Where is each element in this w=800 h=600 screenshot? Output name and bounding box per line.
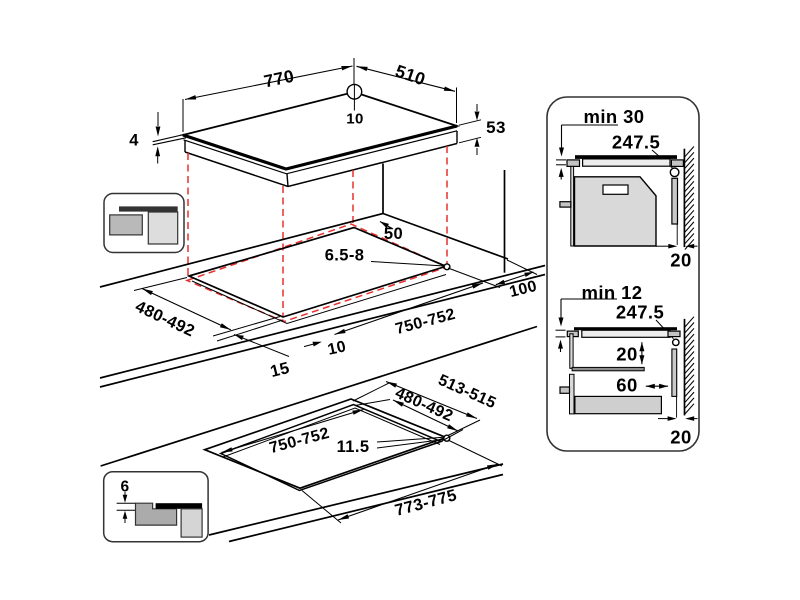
svg-text:100: 100: [508, 278, 539, 301]
svg-text:4: 4: [129, 132, 139, 150]
svg-text:min 12: min 12: [581, 282, 642, 303]
svg-text:53: 53: [486, 118, 506, 137]
svg-text:15: 15: [269, 359, 292, 381]
svg-text:773-775: 773-775: [393, 486, 459, 520]
svg-text:770: 770: [262, 66, 296, 92]
svg-text:min 30: min 30: [583, 106, 644, 127]
svg-text:20: 20: [616, 344, 637, 365]
svg-text:20: 20: [670, 250, 691, 271]
svg-text:247.5: 247.5: [616, 302, 664, 323]
svg-text:510: 510: [393, 61, 428, 90]
svg-text:10: 10: [326, 338, 348, 358]
svg-text:6.5-8: 6.5-8: [325, 247, 365, 265]
svg-text:10: 10: [346, 111, 364, 128]
svg-text:11.5: 11.5: [337, 438, 370, 456]
svg-text:20: 20: [670, 427, 691, 448]
svg-text:750-752: 750-752: [268, 425, 332, 457]
svg-text:480-492: 480-492: [132, 297, 197, 340]
svg-text:60: 60: [616, 375, 637, 396]
svg-text:247.5: 247.5: [612, 132, 660, 153]
